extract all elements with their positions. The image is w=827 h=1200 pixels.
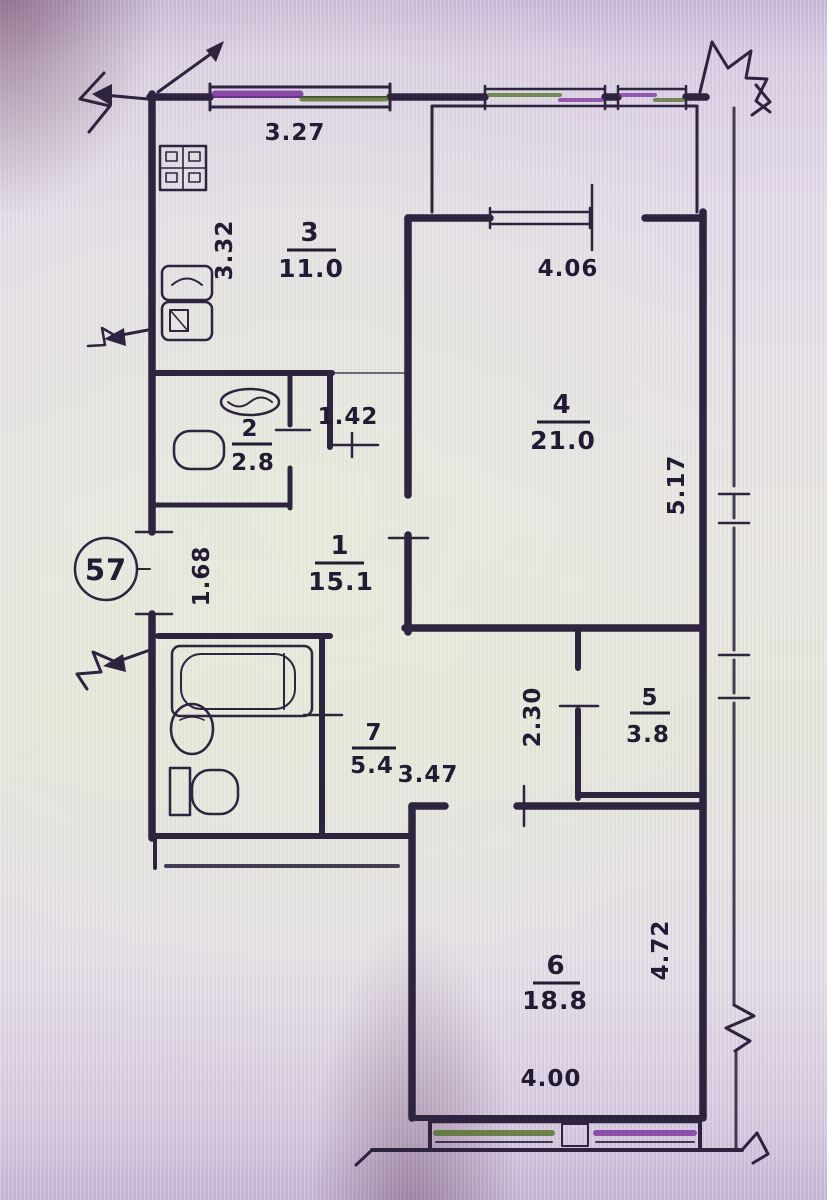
room-living-number: 4 bbox=[552, 390, 571, 420]
room-hall-area: 15.1 bbox=[308, 567, 374, 596]
room-label-closet: 5 3.8 bbox=[626, 685, 670, 748]
kitchen-counter-icon bbox=[162, 302, 212, 340]
break-symbols bbox=[77, 41, 770, 689]
room-label-bedroom: 6 18.8 bbox=[522, 951, 588, 1015]
room-label-living: 4 21.0 bbox=[530, 390, 596, 455]
unit-number: 57 bbox=[85, 553, 127, 587]
room-living-area: 21.0 bbox=[530, 426, 596, 455]
wc-toilet-icon bbox=[174, 431, 224, 469]
wall-break-right-lower bbox=[726, 1005, 754, 1051]
bedroom-window bbox=[430, 1118, 700, 1148]
room-label-hall: 1 15.1 bbox=[308, 531, 374, 596]
balcony-window-1 bbox=[485, 86, 605, 109]
balcony-window-2 bbox=[618, 86, 686, 109]
room-kitchen-area: 11.0 bbox=[278, 254, 344, 283]
dimension-labels: 3.27 3.32 4.06 5.17 1.42 1.68 3.47 2.30 … bbox=[189, 120, 690, 1092]
wall-break-arrow-left bbox=[88, 328, 148, 346]
toilet-icon bbox=[170, 768, 238, 815]
scanned-floor-plan: 57 3 11.0 4 21.0 2 2.8 1 15.1 7 5.4 bbox=[0, 0, 827, 1200]
wc-cistern-icon bbox=[221, 389, 279, 415]
floor-plan-drawing: 57 3 11.0 4 21.0 2 2.8 1 15.1 7 5.4 bbox=[0, 0, 827, 1200]
room-labels: 3 11.0 4 21.0 2 2.8 1 15.1 7 5.4 5 3.8 bbox=[231, 218, 670, 1015]
living-room-window bbox=[490, 208, 590, 228]
dim-hall-opening: 1.42 bbox=[318, 404, 379, 430]
room-label-bath: 7 5.4 bbox=[350, 720, 396, 779]
dim-living-depth: 5.17 bbox=[664, 455, 690, 516]
stove-icon bbox=[160, 146, 206, 190]
dim-hall-width: 3.47 bbox=[398, 762, 459, 788]
dim-kitchen-width: 3.27 bbox=[265, 120, 326, 146]
kitchen-sink-icon bbox=[162, 266, 212, 300]
room-wc-area: 2.8 bbox=[231, 450, 275, 476]
room-wc-number: 2 bbox=[241, 416, 258, 442]
dim-bedroom-width: 4.00 bbox=[521, 1066, 582, 1092]
dim-closet-depth: 2.30 bbox=[520, 687, 546, 748]
room-closet-number: 5 bbox=[641, 685, 658, 711]
room-bath-area: 5.4 bbox=[350, 753, 394, 779]
dim-kitchen-depth: 3.32 bbox=[212, 220, 238, 281]
kitchen-window bbox=[210, 84, 390, 110]
entrance-door-ticks bbox=[136, 532, 172, 614]
dim-bedroom-depth: 4.72 bbox=[648, 920, 674, 981]
wall-break-bottom-left bbox=[356, 1150, 372, 1165]
bedroom-window-pier bbox=[562, 1124, 588, 1146]
interior-walls bbox=[136, 185, 703, 1118]
room-bedroom-area: 18.8 bbox=[522, 986, 588, 1015]
bathtub-icon bbox=[172, 646, 312, 716]
room-bedroom-number: 6 bbox=[546, 951, 565, 981]
room-bath-number: 7 bbox=[365, 720, 382, 746]
entry-arrow bbox=[77, 650, 150, 689]
room-kitchen-number: 3 bbox=[300, 218, 319, 248]
room-label-kitchen: 3 11.0 bbox=[278, 218, 344, 283]
windows bbox=[210, 84, 700, 1148]
hall-dim-tick bbox=[330, 433, 378, 457]
room-closet-area: 3.8 bbox=[626, 722, 670, 748]
balcony-outline bbox=[432, 106, 697, 212]
dim-living-width: 4.06 bbox=[538, 256, 599, 282]
room-label-wc: 2 2.8 bbox=[231, 416, 275, 476]
wall-break-bottom-right bbox=[742, 1133, 768, 1163]
room-hall-number: 1 bbox=[330, 531, 349, 561]
washbasin-icon bbox=[171, 704, 213, 754]
wall-break-symbol-top-right bbox=[700, 42, 770, 115]
dim-entry-width: 1.68 bbox=[189, 546, 215, 607]
unit-number-badge: 57 bbox=[75, 538, 150, 600]
